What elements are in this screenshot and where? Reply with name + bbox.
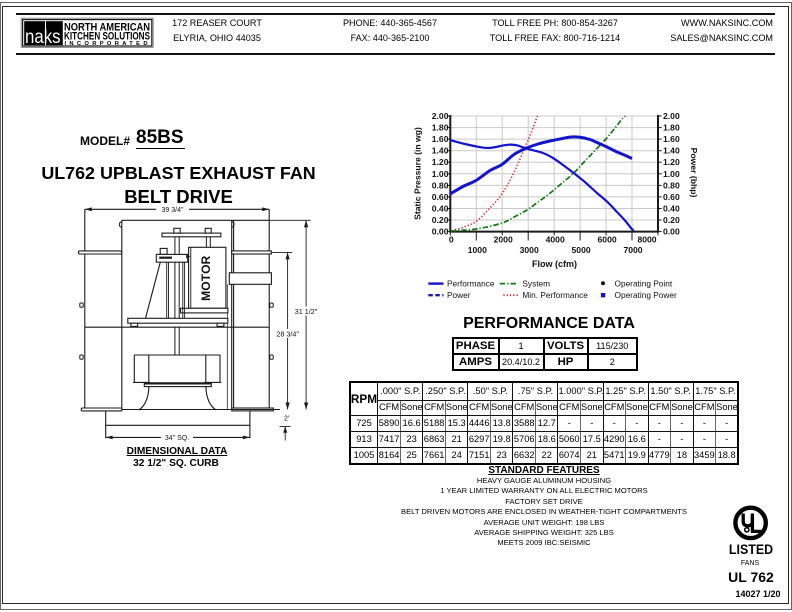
svg-text:1.80: 1.80: [432, 123, 449, 133]
svg-text:Power: Power: [447, 290, 471, 300]
svg-text:System: System: [522, 279, 550, 289]
svg-text:1.60: 1.60: [432, 134, 449, 144]
svg-text:28 3/4": 28 3/4": [276, 330, 299, 339]
svg-text:naks: naks: [25, 27, 61, 48]
svg-text:0.20: 0.20: [663, 215, 680, 225]
svg-text:1000: 1000: [468, 245, 487, 255]
svg-text:39 3/4": 39 3/4": [162, 207, 184, 214]
svg-text:Static Pressure (in wg): Static Pressure (in wg): [412, 127, 422, 220]
svg-text:1.00: 1.00: [663, 169, 680, 179]
svg-text:Performance: Performance: [447, 279, 495, 289]
svg-text:0.80: 0.80: [663, 180, 680, 190]
svg-text:0.20: 0.20: [432, 215, 449, 225]
svg-text:31 1/2": 31 1/2": [295, 307, 318, 316]
svg-text:2': 2': [284, 415, 289, 422]
svg-text:1.20: 1.20: [663, 157, 680, 167]
svg-text:34" SQ.: 34" SQ.: [165, 435, 189, 442]
svg-text:MOTOR: MOTOR: [199, 255, 213, 301]
svg-text:Min. Performance: Min. Performance: [522, 290, 588, 300]
svg-text:1.20: 1.20: [432, 157, 449, 167]
svg-text:4000: 4000: [546, 234, 565, 244]
svg-text:1.80: 1.80: [663, 123, 680, 133]
svg-text:1.40: 1.40: [432, 146, 449, 156]
svg-text:Operating Point: Operating Point: [615, 279, 673, 289]
svg-text:5000: 5000: [572, 245, 591, 255]
svg-text:2.00: 2.00: [663, 111, 680, 121]
svg-text:3000: 3000: [520, 245, 539, 255]
svg-text:2.00: 2.00: [432, 111, 449, 121]
svg-text:0.00: 0.00: [432, 227, 449, 237]
svg-text:Flow (cfm): Flow (cfm): [532, 259, 577, 269]
svg-text:1.40: 1.40: [663, 146, 680, 156]
svg-text:2000: 2000: [494, 234, 513, 244]
svg-text:0.40: 0.40: [432, 204, 449, 214]
svg-text:1.00: 1.00: [432, 169, 449, 179]
svg-text:7000: 7000: [623, 245, 642, 255]
svg-text:0.00: 0.00: [663, 227, 680, 237]
svg-text:0.80: 0.80: [432, 180, 449, 190]
svg-text:0.40: 0.40: [663, 204, 680, 214]
svg-text:0.60: 0.60: [663, 192, 680, 202]
svg-text:8000: 8000: [637, 234, 656, 244]
svg-text:Power (bhp): Power (bhp): [689, 148, 699, 198]
svg-text:Operating Power: Operating Power: [615, 290, 677, 300]
svg-text:6000: 6000: [598, 234, 617, 244]
svg-text:0.60: 0.60: [432, 192, 449, 202]
svg-text:0: 0: [449, 234, 454, 244]
svg-text:1.60: 1.60: [663, 134, 680, 144]
